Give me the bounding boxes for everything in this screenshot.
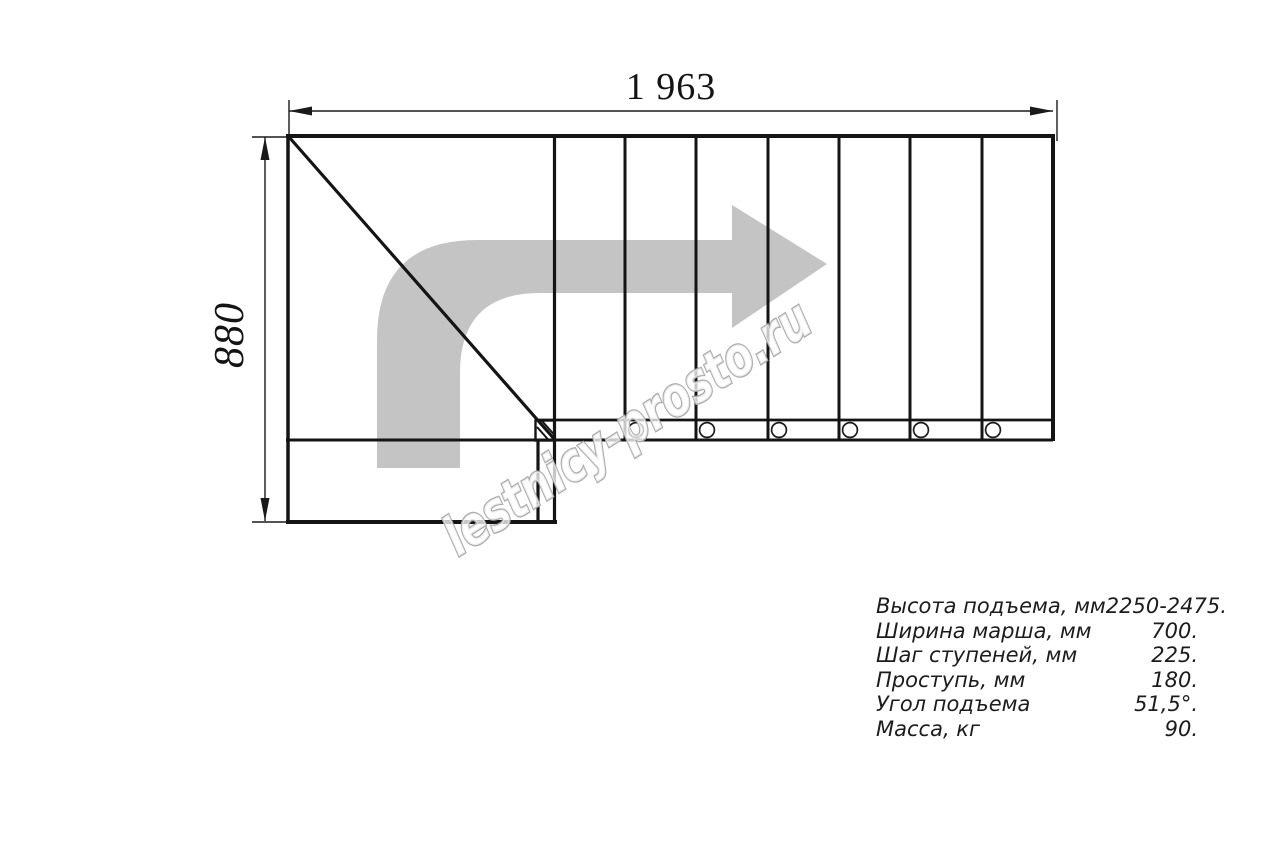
spec-row: Масса, кг 90. [876,717,1198,742]
spec-row: Угол подъема 51,5°. [876,692,1198,717]
bolt-circle [772,423,787,438]
spec-label: Ширина марша, мм [876,619,1092,644]
dimension-arrowhead [1030,107,1053,116]
watermark: lestnicy-prosto.ru [431,287,822,568]
spec-label: Проступь, мм [876,668,1025,693]
bolt-circle [700,423,715,438]
dimension-arrowhead [289,107,312,116]
spec-value: 225. [1151,643,1198,668]
spec-value: 180. [1151,668,1198,693]
stair-plan-drawing: 1 963 880 lestnicy-prosto.ru Высота подъ… [0,0,1280,853]
dimension-arrowhead [261,498,270,521]
dimension-top: 1 963 [289,66,1057,141]
spec-row: Проступь, мм 180. [876,668,1198,693]
spec-value: 90. [1165,717,1198,742]
bolt-circle [986,423,1001,438]
spec-value: 700. [1151,619,1198,644]
spec-row: Шаг ступеней, мм 225. [876,643,1198,668]
spec-value: 2250-2475. [1106,594,1227,619]
bolt-circle [843,423,858,438]
dimension-width-value: 1 963 [626,66,717,108]
dimension-height-value: 880 [207,302,253,368]
spec-row: Высота подъема, мм 2250-2475. [876,594,1198,619]
bolt-circle [914,423,929,438]
spec-label: Шаг ступеней, мм [876,643,1077,668]
spec-label: Угол подъема [876,692,1030,717]
spec-label: Масса, кг [876,717,980,742]
spec-row: Ширина марша, мм 700. [876,619,1198,644]
spec-value: 51,5°. [1134,692,1198,717]
spec-label: Высота подъема, мм [876,594,1106,619]
dimension-left: 880 [207,137,287,522]
spec-table: Высота подъема, мм 2250-2475. Ширина мар… [876,594,1198,742]
dimension-arrowhead [261,137,270,160]
